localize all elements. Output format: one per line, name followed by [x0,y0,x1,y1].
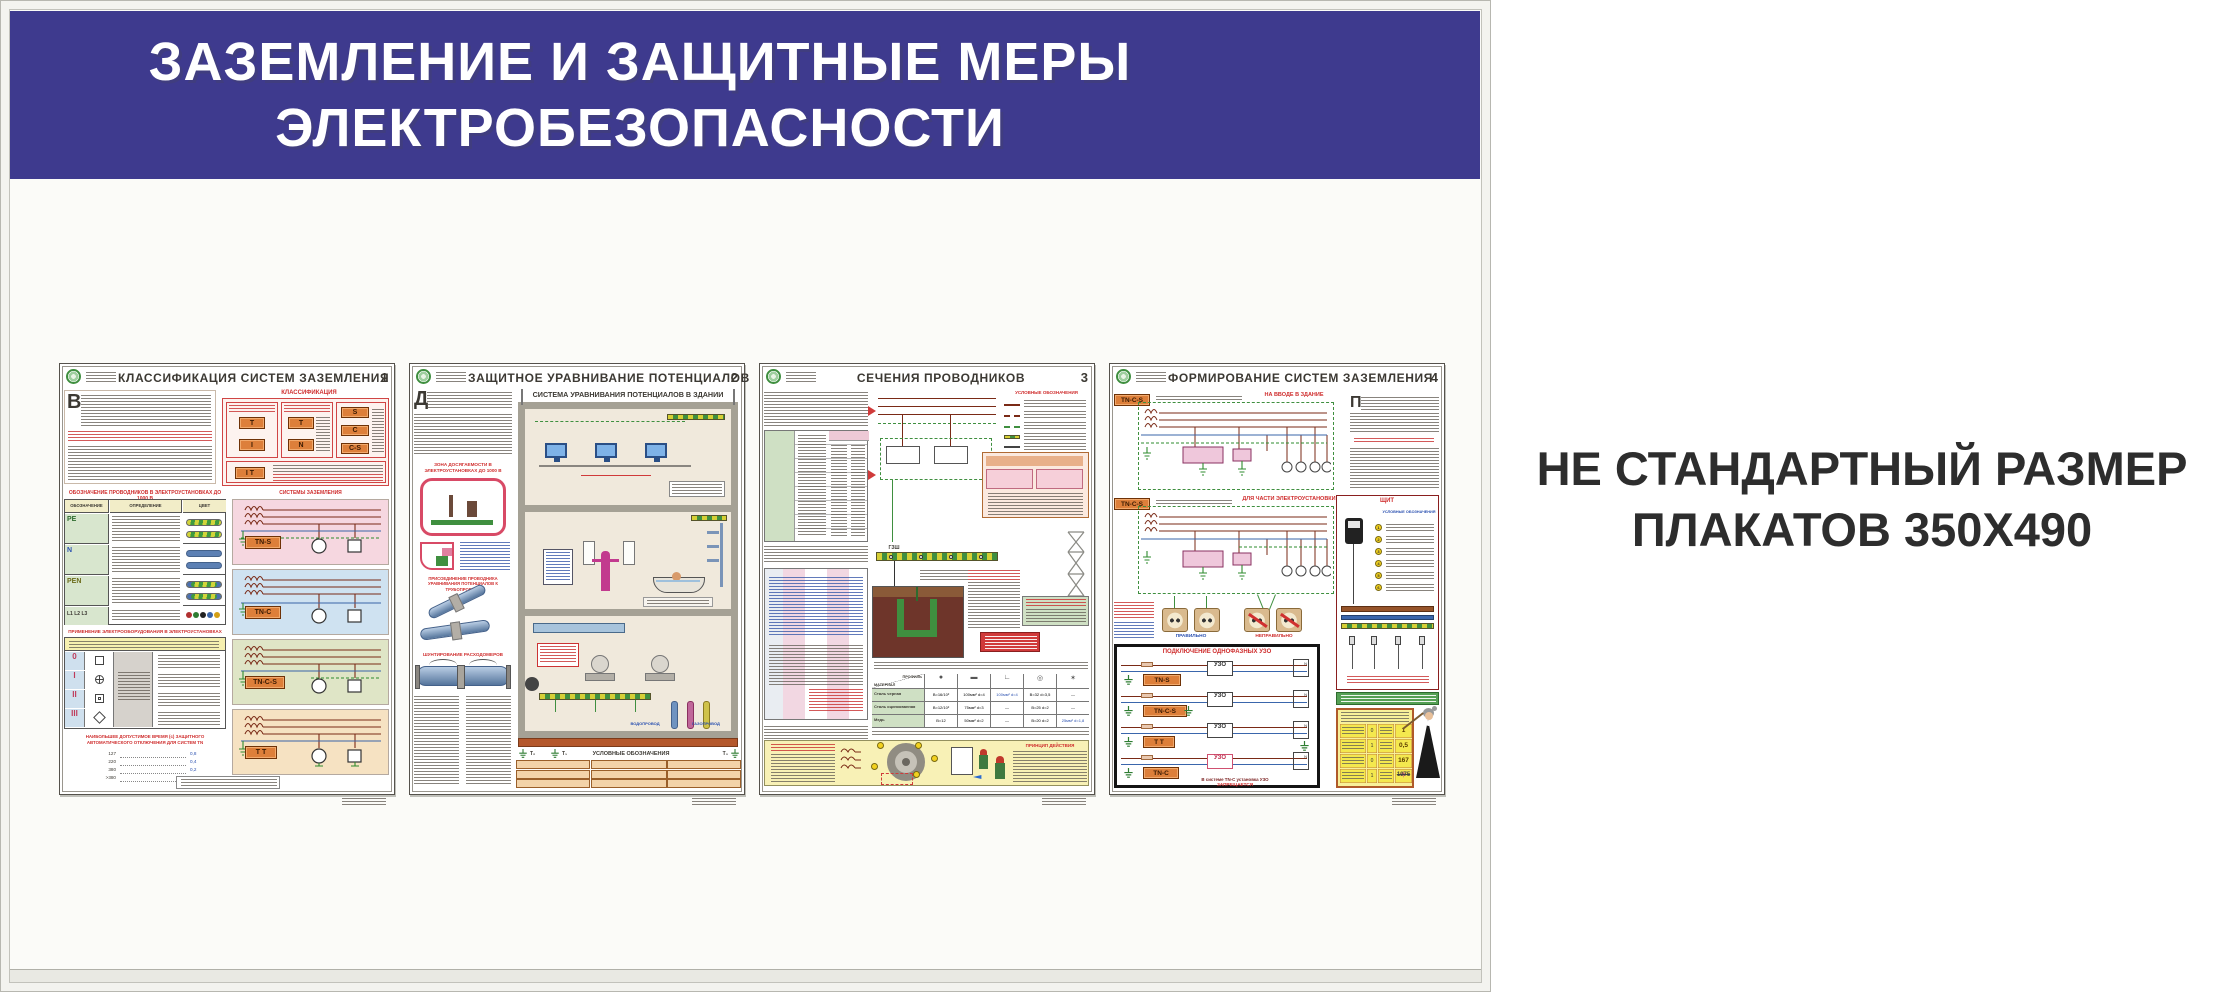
text-lines [798,435,826,537]
ground-label-T1: Т₁ [562,751,567,757]
board-header: ЗАЗЕМЛЕНИЕ И ЗАЩИТНЫЕ МЕРЫ ЭЛЕКТРОБЕЗОПА… [10,11,1480,179]
material-value: 75мм² d=3 [958,702,990,714]
machine-pedestal [645,673,675,681]
ground-icon [1183,706,1194,717]
note-box [537,643,579,667]
system-chip: TN-C-S [1143,705,1187,717]
forbidden-text [968,570,1020,630]
load-box: N [1293,690,1309,708]
circuit-diagram [235,712,385,768]
wire [1398,645,1399,669]
text-lines [769,645,863,685]
phase-dot-icon [186,612,192,618]
text-lines [273,474,383,481]
info-box [982,452,1089,518]
chip-I: I [239,439,265,451]
callout-dot [877,742,884,749]
phase-line [878,414,996,415]
system-label: TN-C-S [245,676,285,689]
text-lines [872,731,1089,737]
profile-icon-wire: ✶ [1057,674,1089,688]
profile-icon-rod: ● [925,674,957,688]
potential-bus [667,414,725,420]
phase-line [878,398,996,399]
material-value: В=12 [925,715,957,727]
rcd-panel: ПРИНЦИП ДЕЙСТВИЯ [764,740,1089,786]
text-lines [1026,599,1086,607]
material-value: В=20 d=2 [1024,715,1056,727]
person-figure [449,495,453,517]
text-lines [546,552,570,582]
system-TT: T T [232,709,389,775]
line-sample [1004,426,1020,428]
text-lines [68,431,212,443]
publisher-logo-icon [416,369,431,384]
material-value: 100мм² d=4 [991,689,1023,701]
pipe-flange [415,665,420,689]
table-value-crossed-wrap: ✶ 1075 [1395,769,1412,783]
uzo-row: УЗО N TN-C-S [1121,690,1313,718]
phase-line [878,406,996,407]
text-lines [112,578,180,604]
text-lines [229,405,275,413]
detail-pink [442,548,452,556]
text-lines [273,465,383,472]
drop-cap: В [67,393,81,411]
text-lines [985,636,1037,650]
class-0: 0 [65,652,85,670]
text-lines [1386,548,1434,555]
col-header-designation: ОБОЗНАЧЕНИЕ [65,500,109,513]
pen-line [878,423,996,424]
legend-cell [591,760,667,769]
text-lines [1347,676,1429,684]
equipment-title: ПРИМЕНЕНИЕ ЭЛЕКТРООБОРУДОВАНИЯ В ЭЛЕКТРО… [64,629,226,634]
fuse [1141,662,1153,667]
hair-bun [1432,706,1437,711]
text-lines [1024,433,1086,441]
info-cell [1036,469,1083,489]
text-lines [771,744,835,752]
worker-figure [995,763,1005,779]
publisher-text [1136,372,1166,383]
fuse [1141,724,1153,729]
n-busbar [1341,615,1434,620]
text-lines [69,641,219,648]
ground-icon [1299,741,1310,752]
machine-pedestal [585,673,615,681]
text-lines [1024,411,1086,419]
breaker [1419,636,1425,645]
transformer-coils [839,747,861,777]
teacher-figure [1416,708,1441,788]
text-lines [920,570,968,582]
n-wire-icon [186,562,222,569]
poster-4: ФОРМИРОВАНИЕ СИСТЕМ ЗАЗЕМЛЕНИЯ 4 TN-C-S … [1109,363,1445,795]
fuse [1141,693,1153,698]
intro-text-block: Д [414,390,512,458]
text-lines [158,674,220,687]
material-name: Сталь черная [872,689,924,701]
text-lines [181,779,277,788]
legend-cell [667,760,741,769]
classification-col1: T I [226,402,278,458]
electricity-meter [1345,518,1363,544]
legend-cell [516,760,590,769]
table-cell [1340,769,1366,783]
arrow-icon [868,406,876,416]
line-sample [1004,404,1020,406]
legend-title: УСЛОВНЫЕ ОБОЗНАЧЕНИЯ [1004,390,1089,395]
text-lines [809,689,863,713]
pipe-joint [457,665,465,689]
poster-2-header: ЗАЩИТНОЕ УРАВНИВАНИЕ ПОТЕНЦИАЛОВ 2 [414,367,740,389]
uzo-row: УЗО N TN-S [1121,659,1313,687]
poster-3-title: СЕЧЕНИЯ ПРОВОДНИКОВ [818,371,1064,385]
pe-wire [535,421,685,422]
circuit-diagram [235,502,385,558]
side-note-line2: ПЛАКАТОВ 350X490 [1496,499,2228,560]
text-lines [1114,622,1154,638]
text-lines [158,655,220,668]
ground-icon [1123,768,1134,779]
green-mini-table [1022,596,1089,626]
chip-S: S [341,407,369,418]
row-label-N: N [65,545,109,575]
person-figure [467,501,477,517]
board-title-line1: ЗАЗЕМЛЕНИЕ И ЗАЩИТНЫЕ МЕРЫ [20,29,1260,95]
person-arms [592,559,619,562]
text-lines [672,484,722,495]
text-lines [1342,727,1364,735]
correct-label: ПРАВИЛЬНО [1158,634,1224,639]
load-box: N [1293,721,1309,739]
wiring-diagram [872,390,1000,542]
text-lines [460,542,510,570]
text-lines [988,493,1083,515]
fuse [1141,755,1153,760]
time: 0,2 [190,766,208,774]
foundation [518,738,738,747]
riser-pipe [720,523,723,587]
class2-symbol-icon [95,694,104,703]
profile-icon-pipe: ◎ [1024,674,1056,688]
text-lines [1024,422,1086,430]
voltage: 380 [82,766,116,774]
pe-drop [555,700,556,712]
bolt [919,555,923,559]
profile-icon-strip: ▬ [958,674,990,688]
callout-dot [915,742,922,749]
profile-icon-angle: ∟ [991,674,1023,688]
table-value: 167 [1395,754,1412,768]
floor-slab [525,505,731,512]
ground-label-T3: Т₃ [723,751,728,757]
legend-num: 3 [1375,548,1382,555]
floor-slab [525,609,731,616]
text-lines [1341,712,1409,722]
pe-drop [635,700,636,712]
material-value: 25мм² d=1,8 [1057,715,1089,727]
side-note-line1: НЕ СТАНДАРТНЫЙ РАЗМЕР [1496,438,2228,499]
table-mid-value: 0 [1367,754,1377,768]
trip-row: 1270,8 [82,750,208,758]
water-pipe [671,701,678,729]
poster-4-body: TN-C-S НА ВВОДЕ В ЗДАНИЕ [1114,390,1441,790]
text-lines [1342,772,1364,780]
table-mid-value: 1 [1367,769,1377,783]
tap [707,545,719,548]
poster-1-title: КЛАССИФИКАЦИЯ СИСТЕМ ЗАЗЕМЛЕНИЯ [118,371,364,385]
vent-duct [533,623,625,633]
shield-title: ЩИТ [1337,498,1437,504]
attach-title: ПРИСОЕДИНЕНИЕ ПРОВОДНИКА УРАВНИВАНИЯ ПОТ… [414,576,512,592]
phase-dot-icon [200,612,206,618]
text-lines [831,445,847,537]
class-I: I [65,671,85,689]
corner-detail [420,542,454,570]
platform [431,520,493,525]
material-value: В=12/10² [925,702,957,714]
publisher-text [786,372,816,383]
floor-sign [643,597,713,607]
poster-2: ЗАЩИТНОЕ УРАВНИВАНИЕ ПОТЕНЦИАЛОВ 2 Д ЗОН… [409,363,745,795]
computer-icon [645,443,667,458]
wire [1353,544,1354,604]
poster-2-body: Д ЗОНА ДОСЯГАЕМОСТИ В ЭЛЕКТРОУСТАНОВКАХ … [414,390,741,790]
material-value: — [991,715,1023,727]
tap [707,559,719,562]
system-TN-C: TN-C [232,569,389,635]
text-lines [1386,584,1434,591]
table-mid-value: 1 [1367,739,1377,753]
computer-icon [545,443,567,458]
intro-text-block: В [64,390,216,484]
resistance-table: 0 1 1 0,5 0 167 1 [1336,708,1414,788]
text-lines [1361,397,1439,410]
potential-bus [691,515,727,521]
classification-title: КЛАССИФИКАЦИЯ [234,390,384,396]
blue-arrow-icon [973,775,985,779]
uzo-note2: ЗАПРЕЩАЕТСЯ [1187,782,1283,787]
time: 0,4 [190,758,208,766]
text-lines [1350,448,1439,490]
poster-1-body: В КЛАССИФИКАЦИЯ T I T N [64,390,391,790]
material-name: Медь [872,715,924,727]
table-value-crossed: 1075 [1395,772,1412,778]
load-box: N [1293,659,1309,677]
classification-col3: S C C-S [336,402,386,458]
dimension-line [581,475,651,476]
line-sample [1004,415,1020,417]
shunt-wire [469,659,497,671]
device-box [886,446,920,464]
text-lines [771,754,835,782]
line-sample [1004,435,1020,439]
legend-header: Т₂ Т₁ УСЛОВНЫЕ ОБОЗНАЧЕНИЯ Т₃ [516,749,740,760]
face [1425,712,1433,720]
text-lines [372,409,384,453]
text-lines [158,712,220,725]
text-lines [81,395,211,427]
helmet [980,749,987,755]
computer-icon [595,443,617,458]
poster-1: КЛАССИФИКАЦИЯ СИСТЕМ ЗАЗЕМЛЕНИЯ 1 В КЛАС… [59,363,395,795]
breaker [1395,636,1401,645]
bathtub [653,577,705,593]
sections-table-2 [764,568,868,720]
text-lines [1114,602,1154,618]
load-box: N [1293,752,1309,770]
material-value: — [1057,702,1089,714]
material-value: — [1057,689,1089,701]
equipment-mid-cell [113,652,153,727]
ground-icon [1123,737,1134,748]
pipe-clamp [450,621,462,640]
tire-hub [902,758,910,766]
building-diagram-title: СИСТЕМА УРАВНИВАНИЯ ПОТЕНЦИАЛОВ В ЗДАНИИ [516,390,740,399]
poster-4-header: ФОРМИРОВАНИЕ СИСТЕМ ЗАЗЕМЛЕНИЯ 4 [1114,367,1440,389]
classification-box: T I T N S C C-S [222,398,389,486]
pe-lead [1174,596,1175,608]
bolt [979,555,983,559]
circuit-diagram [235,642,385,698]
voltage: >380 [82,774,116,782]
system-chip: T T [1143,736,1175,748]
system-chip: TN-S [1143,674,1181,686]
classification-col2: T N [281,402,333,458]
lightning-rod [521,389,523,405]
publisher-text [436,372,466,383]
text-lines [647,600,709,606]
reach-zone-title: ЗОНА ДОСЯГАЕМОСТИ В ЭЛЕКТРОУСТАНОВКАХ ДО… [414,462,512,473]
poster-3: СЕЧЕНИЯ ПРОВОДНИКОВ 3 [759,363,1095,795]
text-lines [1354,438,1434,444]
ground-electrode-image [872,586,964,658]
shunt-wire [429,659,457,671]
text-lines [1386,536,1434,543]
side-note: НЕ СТАНДАРТНЫЙ РАЗМЕР ПЛАКАТОВ 350X490 [1496,438,2228,560]
col-header-definition: ОПРЕДЕЛЕНИЕ [110,500,182,513]
text-lines [1380,742,1392,750]
material-value: — [991,702,1023,714]
row-label-PE: PE [65,514,109,544]
text-lines [414,414,512,456]
material-name: Сталь оцинкованная [872,702,924,714]
phase-dot-icon [214,612,220,618]
legend-num: 6 [1375,584,1382,591]
text-lines [68,446,212,480]
text-lines [1026,609,1086,623]
main-ground-busbar [876,552,998,561]
legend-num: 1 [1375,524,1382,531]
chip-N: N [288,439,314,451]
intro-text-block: П [1350,396,1439,490]
shield-legend-title: УСЛОВНЫЕ ОБОЗНАЧЕНИЯ [1382,510,1436,515]
legend-cell [667,770,741,779]
tap [707,531,719,534]
text-lines [540,646,576,664]
poster-1-number: 1 [381,370,388,385]
phase-dot-icon [207,612,213,618]
corner-cell: ПРОФИЛЬ МАТЕРИАЛ [872,674,924,688]
bolt [949,555,953,559]
gas-pipe-label: ГАЗОПРОВОД [683,721,729,726]
text-lines [118,672,150,702]
wire-N [183,545,226,575]
class0-symbol-icon [95,656,104,665]
warning-chip [980,632,1040,652]
ground-label-T2: Т₂ [530,751,535,757]
class1-symbol-icon [95,675,104,684]
system-TN-S: TN-S [232,499,389,565]
uzo-row: УЗО N TN-C [1121,752,1313,780]
poster-3-body: УСЛОВНЫЕ ОБОЗНАЧЕНИЯ ГЗШ [764,390,1091,790]
material-value: В=16/10² [925,689,957,701]
uzo-device: УЗО [1207,723,1233,738]
text-lines [1341,695,1436,704]
poster-3-header: СЕЧЕНИЯ ПРОВОДНИКОВ 3 [764,367,1090,389]
board-title-line2: ЭЛЕКТРОБЕЗОПАСНОСТИ [20,95,1260,161]
phase-colors [183,607,226,625]
water [656,580,700,582]
poster-caption [1042,798,1086,806]
text-lines [1342,742,1364,750]
breaker [1349,636,1355,645]
text-lines [1380,727,1392,735]
text-lines [968,570,1020,580]
collar [1426,721,1431,726]
ground-icon [1123,706,1134,717]
legend-title: УСЛОВНЫЕ ОБОЗНАЧЕНИЯ [576,751,686,757]
wire [1422,645,1423,669]
info-box-header [986,456,1083,466]
table-cell [1340,754,1366,768]
conductors-table: ОБОЗНАЧЕНИЕ ОПРЕДЕЛЕНИЕ ЦВЕТ PE N [64,499,226,625]
socket-icon-wrong [1244,608,1270,632]
callout-dot [871,763,878,770]
arrow-icon [868,470,876,480]
text-lines [112,547,180,573]
voltage: 220 [82,758,116,766]
row-label-L123: L1 L2 L3 [65,607,109,625]
pe-drop [595,700,596,712]
pen-busbar [1341,606,1434,612]
callout-dot [913,771,920,778]
socket-icon [1162,608,1188,632]
chip-IT: I T [235,467,265,479]
person-figure [601,551,610,591]
material-value: 50мм² d=2 [958,715,990,727]
system-chip: TN-C [1143,767,1179,779]
text-lines [1386,524,1434,531]
ground-icon [518,749,528,759]
wire-PE [183,514,226,544]
text-lines [427,392,512,410]
poster-1-header: КЛАССИФИКАЦИЯ СИСТЕМ ЗАЗЕМЛЕНИЯ 1 [64,367,390,389]
chip-T: T [239,417,265,429]
credit-box [176,776,280,789]
table-col-green [765,431,795,541]
lightning-rod [733,389,735,405]
reach-zone-diagram [420,478,506,536]
shunt-title: ШУНТИРОВАНИЕ РАСХОДОМЕРОВ [414,652,512,657]
poster-3-number: 3 [1081,370,1088,385]
uzo-device-forbidden: УЗО [1207,754,1233,769]
wire-PEN [183,576,226,606]
table-value: 0,5 [1395,739,1412,753]
meter-window [1348,521,1360,528]
